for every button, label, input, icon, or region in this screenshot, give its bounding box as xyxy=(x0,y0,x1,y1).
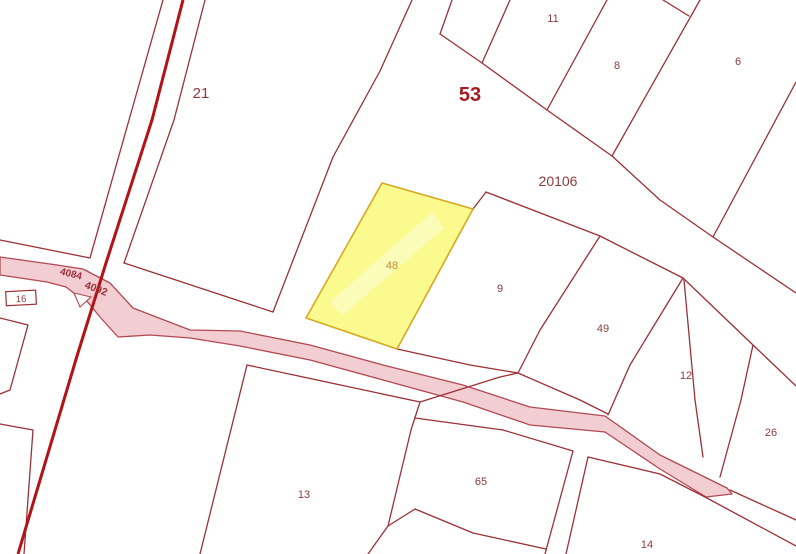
boundary-parcel12-parcel26 xyxy=(720,345,753,477)
boundary-parcel9-step xyxy=(473,192,486,209)
boundary-south-lane-east xyxy=(566,457,588,554)
boundary-parcel13-corner xyxy=(368,526,388,554)
boundary-road20106-south xyxy=(486,192,796,386)
map-svg: 48 16 21 53 20106 11 8 6 9 49 12 26 13 6… xyxy=(0,0,796,554)
boundary-top-corner xyxy=(663,0,689,16)
boundary-parcel9-south xyxy=(397,349,518,373)
parcel-label-12: 12 xyxy=(680,370,692,382)
cadastral-map-canvas: 48 16 21 53 20106 11 8 6 9 49 12 26 13 6… xyxy=(0,0,796,554)
boundary-parcel6-south xyxy=(713,82,796,237)
boundary-parcel49-parcel12 xyxy=(608,278,683,415)
boundary-parcel11-west xyxy=(482,0,510,63)
parcel-label-26: 26 xyxy=(765,427,777,439)
parcel-label-13: 13 xyxy=(298,489,310,501)
boundary-south-lane-west xyxy=(545,451,573,554)
boundary-block53-corridor-east xyxy=(440,0,452,34)
boundary-parcel14-parcel26 xyxy=(705,497,796,546)
boundary-parcel21-west xyxy=(124,0,205,263)
parcel-label-6: 6 xyxy=(735,56,741,68)
parcel-label-49: 49 xyxy=(597,323,609,335)
block-label-53: 53 xyxy=(459,84,481,106)
parcel-label-48: 48 xyxy=(386,260,398,272)
boundary-parcel8-parcel6 xyxy=(612,0,700,156)
boundary-parcel12-east xyxy=(684,280,703,457)
boundary-parcel13-west xyxy=(200,365,247,554)
parcel-label-8: 8 xyxy=(614,60,620,72)
parcel-label-16: 16 xyxy=(16,294,27,306)
parcel-label-21: 21 xyxy=(193,85,210,102)
highlighted-parcel-48[interactable]: 48 xyxy=(306,183,473,349)
parcel-16-box: 16 xyxy=(6,290,37,306)
boundary-parcel21-south xyxy=(124,263,273,312)
boundary-block53-north xyxy=(440,34,796,293)
parcel-label-9: 9 xyxy=(497,283,503,295)
parcel-label-11: 11 xyxy=(547,13,558,25)
boundary-parcel13-parcel65 xyxy=(388,402,420,526)
boundary-parcel9-east xyxy=(518,236,600,373)
parcel-label-14: 14 xyxy=(641,539,653,551)
road-parcel-label-20106: 20106 xyxy=(539,173,578,189)
boundary-parcel65-south xyxy=(388,509,546,549)
boundary-left-corner-lower xyxy=(0,424,33,554)
boundary-left-corner-upper xyxy=(0,318,28,394)
parcel-label-65: 65 xyxy=(475,476,487,488)
boundary-road-left-edge xyxy=(0,0,163,258)
